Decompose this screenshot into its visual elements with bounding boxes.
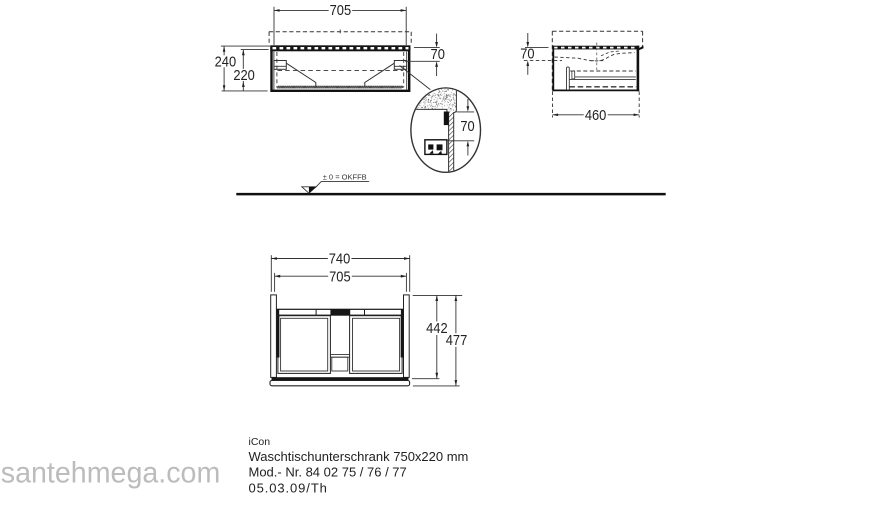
svg-text:± 0 = OKFFB: ± 0 = OKFFB (323, 173, 367, 182)
svg-text:442: 442 (426, 320, 448, 337)
svg-text:Mod.- Nr. 84 02 75 / 76 / 77: Mod.- Nr. 84 02 75 / 76 / 77 (249, 465, 407, 480)
svg-text:Waschtischunterschrank 750x220: Waschtischunterschrank 750x220 mm (249, 449, 469, 464)
svg-text:705: 705 (329, 268, 351, 285)
svg-text:05.03.09/Th: 05.03.09/Th (249, 481, 328, 496)
svg-text:477: 477 (446, 332, 468, 349)
svg-text:740: 740 (329, 251, 351, 268)
svg-text:460: 460 (585, 107, 607, 124)
svg-text:santehmega.com: santehmega.com (1, 457, 221, 490)
svg-text:70: 70 (431, 46, 445, 63)
svg-text:70: 70 (520, 46, 534, 63)
svg-text:220: 220 (233, 67, 255, 84)
svg-text:iCon: iCon (249, 436, 271, 448)
svg-text:70: 70 (460, 118, 474, 135)
svg-text:705: 705 (330, 2, 352, 19)
